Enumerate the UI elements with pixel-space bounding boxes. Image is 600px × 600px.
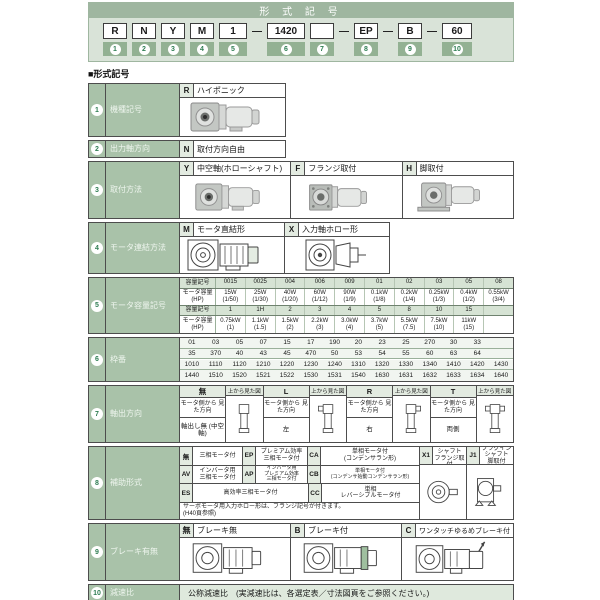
- aux-name: プラグインシャフト フランジ取付: [433, 447, 466, 464]
- aux-name: プレミアム効率 三相モータ付: [256, 447, 308, 465]
- shaft-dir-both: T モータ側から 見た方向 両側 上から見た図: [431, 386, 514, 442]
- brake-name: ブレーキ付: [305, 524, 351, 537]
- frame-number: 1631: [394, 370, 418, 381]
- code-box: Y: [161, 23, 185, 39]
- row-label: モータ連結方法: [106, 222, 180, 274]
- code-box: B: [398, 23, 422, 39]
- code-box: N: [132, 23, 156, 39]
- frame-row-1: 0103050715171902023252703033: [180, 338, 513, 349]
- frame-number: 190: [323, 338, 347, 348]
- code-dash: —: [252, 23, 262, 39]
- aux-code-cb: CB: [308, 466, 321, 484]
- capacity-power: 5.5kW (7.5): [395, 316, 425, 333]
- capacity-code: 01: [365, 278, 395, 288]
- reduction-ratio-text: 公称減速比 (実減速比は、各選定表／寸法図頁をご参照ください。): [180, 584, 514, 600]
- dir-value: 両側: [431, 418, 476, 442]
- capacity-code: 0025: [246, 278, 276, 288]
- section-title: ■形式記号: [88, 67, 514, 80]
- code-box: 1: [219, 23, 247, 39]
- flange-mount-photo: [304, 178, 388, 216]
- frame-number: 1320: [370, 360, 394, 370]
- capacity-code-header: 容量記号: [180, 278, 216, 288]
- mount-flange: F フランジ取付: [291, 162, 402, 218]
- aux-name: インバータ用 三相モータ付: [193, 466, 243, 484]
- frame-number: 1630: [370, 370, 394, 381]
- brake-with: B ブレーキ付: [291, 524, 402, 580]
- frame-number: 1340: [418, 360, 442, 370]
- code-f: F: [291, 162, 305, 175]
- frame-number: 43: [251, 349, 275, 359]
- code-brake-none: 無: [180, 524, 194, 537]
- row-number: 5: [88, 277, 106, 334]
- frame-number: 40: [228, 349, 252, 359]
- machine-type-cell: R ハイポニック: [180, 83, 286, 137]
- capacity-code: 08: [484, 278, 513, 288]
- frame-number: 1420: [465, 360, 489, 370]
- code-number-tile: 6: [267, 42, 305, 56]
- row-label: 機種記号: [106, 83, 180, 137]
- capacity-power: 0.1kW (1/8): [365, 289, 395, 305]
- circled-number: 10: [452, 44, 463, 55]
- aux-code-es: ES: [180, 484, 193, 502]
- frame-number: 270: [418, 338, 442, 348]
- frame-number: 01: [180, 338, 204, 348]
- frame-number: 53: [346, 349, 370, 359]
- top-view-label: 上から見た図: [310, 386, 347, 396]
- model-code-boxes: R 1 N 2 Y 3 M 4 1 5 — 1420 6: [89, 18, 513, 61]
- capacity-code-header: 容量記号: [180, 306, 216, 316]
- seen-from-motor-label: モータ側から 見た方向: [180, 398, 225, 418]
- capacity-power: 3.7kW (5): [365, 316, 395, 333]
- row-shaft-direction: 7 軸出方向 無 モータ側から 見た方向 軸出し無 (中空軸) 上から見た図: [88, 385, 514, 443]
- code-unit-3: Y 3: [161, 23, 185, 56]
- capacity-power: [484, 316, 513, 333]
- capacity-power-row-2: 0.75kW (1)1.1kW (1.5)1.5kW (2)2.2kW (3)3…: [216, 316, 513, 333]
- circled-number: 8: [361, 44, 372, 55]
- frame-number: 54: [370, 349, 394, 359]
- frame-number: 1632: [418, 370, 442, 381]
- frame-number: 63: [442, 349, 466, 359]
- brake-name: ワンタッチゆるめブレーキ付: [416, 524, 513, 537]
- brake-name: ブレーキ無: [194, 524, 240, 537]
- top-view-label: 上から見た図: [393, 386, 430, 396]
- output-direction-name: 取付方向自由: [194, 141, 248, 157]
- row-number: 6: [88, 337, 106, 382]
- top-view-diagram-right-icon: [401, 403, 421, 435]
- top-view-label: 上から見た図: [477, 386, 514, 396]
- capacity-code: 5: [365, 306, 395, 316]
- code-number-tile: 8: [354, 42, 378, 56]
- dir-value: 左: [264, 418, 309, 442]
- row-motor-connection: 4 モータ連結方法 M モータ直結形: [88, 222, 514, 274]
- frame-number: 50: [323, 349, 347, 359]
- row-label: ブレーキ有無: [106, 523, 180, 581]
- code-brake-c: C: [402, 524, 416, 537]
- frame-number: 370: [204, 349, 228, 359]
- frame-number: 1430: [489, 360, 513, 370]
- code-unit-5: 1 5: [219, 23, 247, 56]
- code-box-empty: [310, 23, 334, 39]
- brake-none-drawing: [191, 540, 279, 578]
- frame-number: 1440: [180, 370, 204, 381]
- capacity-power: 0.55kW (3/4): [484, 289, 513, 305]
- row-output-shaft-direction: 2 出力軸方向 N 取付方向自由: [88, 140, 514, 158]
- code-number-tile: 3: [161, 42, 185, 56]
- aux-name: 単相モータ付 (コンデンサラン形): [321, 447, 419, 465]
- code-box: R: [103, 23, 127, 39]
- aux-name: プラグインシャフト 脚取付: [480, 447, 513, 464]
- frame-number: 1522: [275, 370, 299, 381]
- frame-number: 35: [180, 349, 204, 359]
- frame-number: 1531: [323, 370, 347, 381]
- frame-number: 1633: [442, 370, 466, 381]
- frame-number: 07: [251, 338, 275, 348]
- code-number-tile: 1: [103, 42, 127, 56]
- seen-from-motor-label: モータ側から 見た方向: [264, 398, 309, 418]
- top-view-diagram-left-icon: [318, 403, 338, 435]
- aux-name: インバータ用 プレミアム効率 三相モータ付: [256, 466, 308, 484]
- frame-number: 1310: [346, 360, 370, 370]
- shaft-dir-none: 無 モータ側から 見た方向 軸出し無 (中空軸) 上から見た図: [180, 386, 264, 442]
- frame-number: [489, 349, 513, 359]
- seen-from-motor-label: モータ側から 見た方向: [347, 398, 392, 418]
- capacity-power-row-1: 15W (1/50)25W (1/30)40W (1/20)60W (1/12)…: [216, 289, 513, 305]
- code-number-tile: 2: [132, 42, 156, 56]
- shaft-dir-right: R モータ側から 見た方向 右 上から見た図: [347, 386, 431, 442]
- frame-number: 1530: [299, 370, 323, 381]
- code-box: 60: [442, 23, 472, 39]
- dir-code: 無: [180, 386, 225, 398]
- capacity-code: [484, 306, 513, 316]
- model-code-title: 形 式 記 号: [89, 3, 513, 18]
- frame-number: 1640: [489, 370, 513, 381]
- frame-number: 05: [228, 338, 252, 348]
- capacity-power-header: モータ容量 (HP): [180, 316, 216, 333]
- aux-code-ep: EP: [243, 447, 256, 465]
- aux-name: 高効率三相モータ付: [193, 484, 309, 502]
- code-number-tile: 5: [219, 42, 247, 56]
- row-label: モータ容量記号: [106, 277, 180, 334]
- mount-name: フランジ取付: [305, 162, 359, 175]
- frame-number: 1520: [228, 370, 252, 381]
- frame-number: 45: [275, 349, 299, 359]
- brake-none: 無 ブレーキ無: [180, 524, 291, 580]
- aux-name: 単相 レバーシブルモータ付: [322, 484, 419, 502]
- frame-number: 1410: [442, 360, 466, 370]
- frame-number-grid: 0103050715171902023252703033 35370404345…: [180, 337, 514, 382]
- capacity-code: 1: [216, 306, 246, 316]
- aux-code-cc: CC: [309, 484, 322, 502]
- motor-direct-coupled: M モータ直結形: [180, 223, 285, 273]
- row-number: 3: [88, 161, 106, 219]
- mount-hollow-shaft: Y 中空軸(ホローシャフト): [180, 162, 291, 218]
- capacity-code: 05: [454, 278, 484, 288]
- plugin-shaft-flange-drawing: [425, 475, 461, 509]
- circled-number: 1: [110, 44, 121, 55]
- frame-number: 1330: [394, 360, 418, 370]
- capacity-power: 0.2kW (1/4): [395, 289, 425, 305]
- aux-code-av: AV: [180, 466, 193, 484]
- code-box: M: [190, 23, 214, 39]
- row-machine-type: 1 機種記号 R ハイポニック: [88, 83, 514, 137]
- frame-number: 60: [418, 349, 442, 359]
- capacity-code-row-1: 001500250040060090102030508: [216, 278, 513, 288]
- capacity-code: 0015: [216, 278, 246, 288]
- aux-code-none: 無: [180, 447, 193, 465]
- frame-row-3: 1010111011201210122012301240131013201330…: [180, 360, 513, 371]
- capacity-power: 11kW (15): [454, 316, 484, 333]
- frame-number: 470: [299, 349, 323, 359]
- row-number: 2: [88, 140, 106, 158]
- row-frame-numbers: 6 枠番 0103050715171902023252703033 353704…: [88, 337, 514, 382]
- capacity-code: 03: [425, 278, 455, 288]
- capacity-power: 40W (1/20): [276, 289, 306, 305]
- catalog-page: { "header": { "title": "形 式 記 号", "dash"…: [0, 0, 600, 600]
- code-m: M: [180, 223, 194, 236]
- frame-number: 1010: [180, 360, 204, 370]
- capacity-code: 004: [276, 278, 306, 288]
- row-label: 減速比: [106, 584, 180, 600]
- code-n: N: [180, 141, 194, 157]
- row-number: 1: [88, 83, 106, 137]
- code-number-tile: 10: [442, 42, 472, 56]
- code-y: Y: [180, 162, 194, 175]
- capacity-power: 3.0kW (4): [335, 316, 365, 333]
- code-number-tile: 7: [310, 42, 334, 56]
- plugin-shaft-foot: J1 プラグインシャフト 脚取付: [467, 447, 513, 519]
- frame-number: 1634: [465, 370, 489, 381]
- motor-connection-options: M モータ直結形: [180, 222, 390, 274]
- frame-number: 1510: [204, 370, 228, 381]
- row-label: 枠番: [106, 337, 180, 382]
- row-brake: 9 ブレーキ有無 無 ブレーキ無: [88, 523, 514, 581]
- frame-number: 30: [442, 338, 466, 348]
- capacity-power: 0.25kW (1/3): [425, 289, 455, 305]
- frame-number: 1540: [346, 370, 370, 381]
- plugin-shaft-foot-drawing: [472, 475, 508, 509]
- output-direction-cell: N 取付方向自由: [180, 140, 286, 158]
- aux-code-j1: J1: [467, 447, 480, 464]
- frame-number: 20: [346, 338, 370, 348]
- machine-type-name: ハイポニック: [194, 84, 248, 97]
- frame-number: [489, 338, 513, 348]
- circled-number: 5: [228, 44, 239, 55]
- capacity-power-header: モータ容量 (HP): [180, 289, 216, 305]
- brake-onetouch-release: C ワンタッチゆるめブレーキ付: [402, 524, 513, 580]
- row-number: 9: [88, 523, 106, 581]
- frame-number: 33: [465, 338, 489, 348]
- brake-with-drawing: [302, 540, 390, 578]
- row-label: 取付方法: [106, 161, 180, 219]
- capacity-code: 009: [335, 278, 365, 288]
- shaft-direction-groups: 無 モータ側から 見た方向 軸出し無 (中空軸) 上から見た図: [180, 385, 514, 443]
- row-mounting-method: 3 取付方法 Y 中空軸(ホローシャフト): [88, 161, 514, 219]
- frame-number: 03: [204, 338, 228, 348]
- code-unit-9: B 9: [398, 23, 422, 56]
- dir-code: L: [264, 386, 309, 398]
- row-label: 補助形式: [106, 446, 180, 520]
- input-hollow-shaft: X 入力軸ホロー形: [285, 223, 389, 273]
- row-number: 10: [88, 584, 106, 600]
- code-box: EP: [354, 23, 378, 39]
- code-dash: —: [383, 23, 393, 39]
- row-auxiliary-type: 8 補助形式 無 三相モータ付 EP プレミアム効率 三相モータ付 CA 単相モ…: [88, 446, 514, 520]
- row-reduction-ratio: 10 減速比 公称減速比 (実減速比は、各選定表／寸法図頁をご参照ください。): [88, 584, 514, 600]
- aux-code-x1: X1: [420, 447, 433, 464]
- capacity-power: 2.2kW (3): [305, 316, 335, 333]
- circled-number: 2: [139, 44, 150, 55]
- brake-options: 無 ブレーキ無: [180, 523, 514, 581]
- servo-note: サーボモータ用入力ホロー形は、フランジ記号が付きます。 (H40頁参照): [180, 503, 419, 519]
- code-dash: —: [427, 23, 437, 39]
- mounting-options: Y 中空軸(ホローシャフト): [180, 161, 514, 219]
- top-view-label: 上から見た図: [226, 386, 263, 396]
- shaft-dir-left: L モータ側から 見た方向 左 上から見た図: [264, 386, 348, 442]
- capacity-code: 4: [335, 306, 365, 316]
- model-code-header: 形 式 記 号 R 1 N 2 Y 3 M 4 1 5 —: [88, 2, 514, 62]
- frame-number: 1110: [204, 360, 228, 370]
- frame-row-4: 1440151015201521152215301531154016301631…: [180, 370, 513, 381]
- frame-number: 1521: [251, 370, 275, 381]
- row-motor-capacity: 5 モータ容量記号 容量記号 0015002500400600901020305…: [88, 277, 514, 334]
- code-unit-10: 60 10: [442, 23, 472, 56]
- hyponic-gearmotor-photo: [188, 99, 278, 135]
- capacity-table: 容量記号 001500250040060090102030508 モータ容量 (…: [180, 277, 514, 334]
- capacity-power: 1.1kW (1.5): [246, 316, 276, 333]
- frame-number: 1210: [251, 360, 275, 370]
- connection-name: モータ直結形: [194, 223, 248, 236]
- aux-name: 単相モータ付 (コンデンサ始動コンデンサラン形): [321, 466, 419, 484]
- capacity-code-row-2: 11H234581015: [216, 306, 513, 316]
- mount-name: 中空軸(ホローシャフト): [194, 162, 285, 175]
- code-number-tile: 9: [398, 42, 422, 56]
- frame-number: 17: [299, 338, 323, 348]
- foot-mount-photo: [416, 178, 500, 216]
- code-dash: —: [339, 23, 349, 39]
- code-unit-4: M 4: [190, 23, 214, 56]
- aux-name: 三相モータ付: [193, 447, 243, 465]
- hollow-shaft-photo: [193, 178, 277, 216]
- circled-number: 4: [197, 44, 208, 55]
- frame-number: 1230: [299, 360, 323, 370]
- connection-name: 入力軸ホロー形: [299, 223, 361, 236]
- mount-name: 脚取付: [417, 162, 447, 175]
- dir-value: 軸出し無 (中空軸): [180, 418, 225, 442]
- auxiliary-grid: 無 三相モータ付 EP プレミアム効率 三相モータ付 CA 単相モータ付 (コン…: [180, 446, 514, 520]
- capacity-power: 0.4kW (1/2): [454, 289, 484, 305]
- capacity-code: 10: [425, 306, 455, 316]
- capacity-power: 15W (1/50): [216, 289, 246, 305]
- capacity-power: 1.5kW (2): [276, 316, 306, 333]
- code-unit-7: 7: [310, 23, 334, 56]
- circled-number: 3: [168, 44, 179, 55]
- code-box: 1420: [267, 23, 305, 39]
- capacity-code: 15: [454, 306, 484, 316]
- capacity-code: 006: [305, 278, 335, 288]
- row-label: 軸出方向: [106, 385, 180, 443]
- row-number: 4: [88, 222, 106, 274]
- dir-code: R: [347, 386, 392, 398]
- dir-code: T: [431, 386, 476, 398]
- capacity-power: 0.75kW (1): [216, 316, 246, 333]
- code-unit-6: 1420 6: [267, 23, 305, 56]
- row-number: 8: [88, 446, 106, 520]
- code-unit-2: N 2: [132, 23, 156, 56]
- direct-coupled-drawing: [186, 238, 278, 272]
- capacity-power: 7.5kW (10): [425, 316, 455, 333]
- code-x: X: [285, 223, 299, 236]
- top-view-diagram-both-icon: [485, 403, 505, 435]
- circled-number: 9: [405, 44, 416, 55]
- frame-number: 23: [370, 338, 394, 348]
- capacity-code: 8: [395, 306, 425, 316]
- frame-number: 1120: [228, 360, 252, 370]
- code-number-tile: 4: [190, 42, 214, 56]
- frame-row-2: 3537040434547050535455606364: [180, 349, 513, 360]
- code-r: R: [180, 84, 194, 97]
- capacity-power: 60W (1/12): [305, 289, 335, 305]
- top-view-diagram-none-icon: [234, 403, 254, 435]
- code-unit-8: EP 8: [354, 23, 378, 56]
- frame-number: 25: [394, 338, 418, 348]
- aux-code-ca: CA: [308, 447, 321, 465]
- capacity-power: 25W (1/30): [246, 289, 276, 305]
- row-label: 出力軸方向: [106, 140, 180, 158]
- dir-value: 右: [347, 418, 392, 442]
- capacity-code: 1H: [246, 306, 276, 316]
- row-number: 7: [88, 385, 106, 443]
- capacity-code: 3: [305, 306, 335, 316]
- seen-from-motor-label: モータ側から 見た方向: [431, 398, 476, 418]
- input-hollow-drawing: [302, 238, 372, 272]
- code-unit-1: R 1: [103, 23, 127, 56]
- capacity-power: 90W (1/9): [335, 289, 365, 305]
- frame-number: 1220: [275, 360, 299, 370]
- capacity-code: 2: [276, 306, 306, 316]
- mount-foot: H 脚取付: [403, 162, 513, 218]
- capacity-code: 02: [395, 278, 425, 288]
- aux-code-ap: AP: [243, 466, 256, 484]
- circled-number: 6: [281, 44, 292, 55]
- frame-number: 64: [465, 349, 489, 359]
- code-h: H: [403, 162, 417, 175]
- plugin-shaft-flange: X1 プラグインシャフト フランジ取付: [420, 447, 467, 519]
- frame-number: 55: [394, 349, 418, 359]
- brake-onetouch-drawing: [414, 540, 502, 578]
- frame-number: 15: [275, 338, 299, 348]
- frame-number: 1240: [323, 360, 347, 370]
- code-brake-b: B: [291, 524, 305, 537]
- circled-number: 7: [317, 44, 328, 55]
